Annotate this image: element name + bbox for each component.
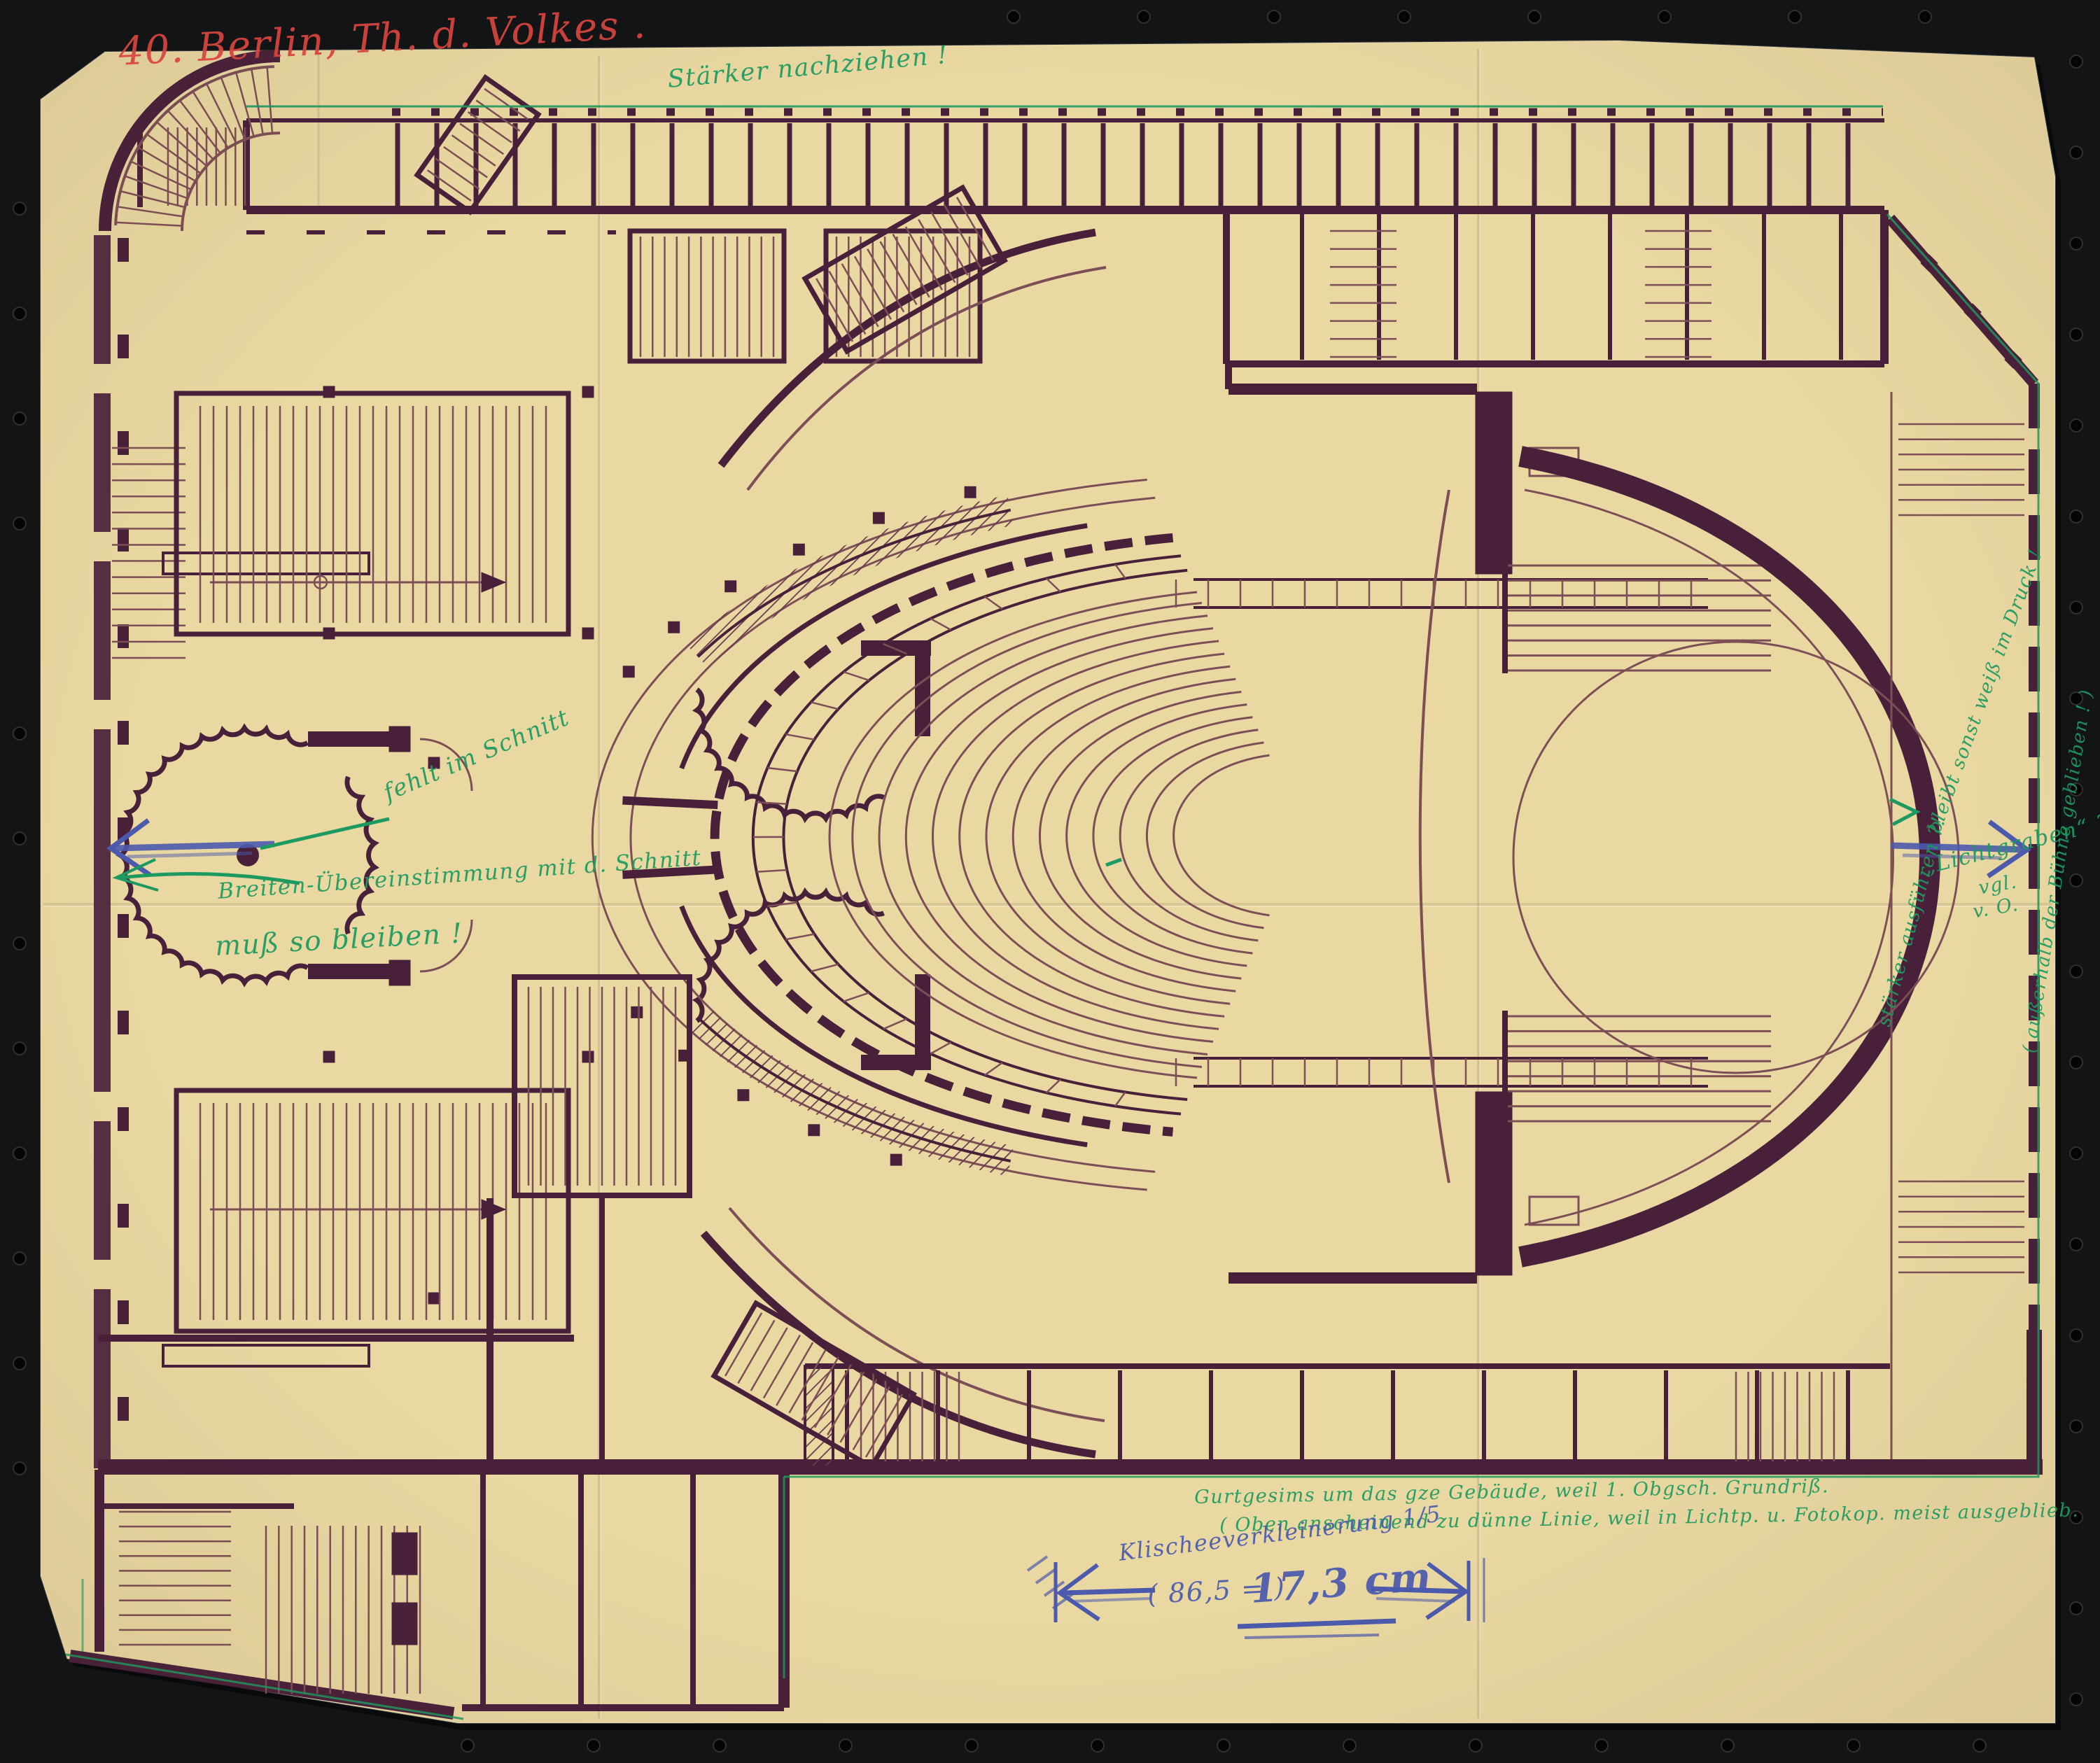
scanned-floor-plan: 40. Berlin, Th. d. Volkes . Stärker nach… [0, 0, 2100, 1763]
